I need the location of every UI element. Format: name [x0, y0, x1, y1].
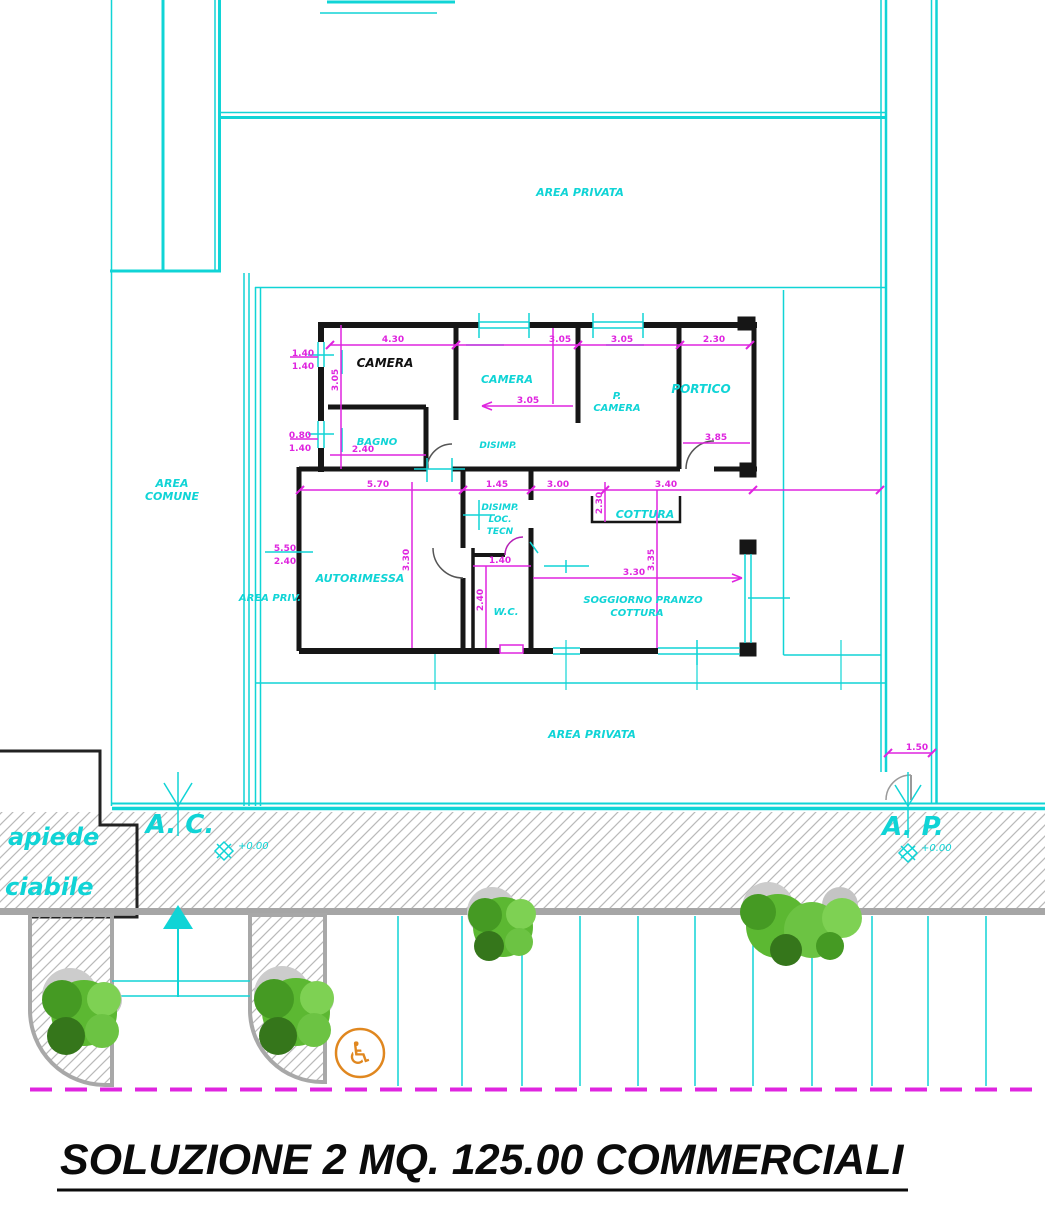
room-cottura-label: COTTURA: [616, 508, 675, 521]
sidewalk-label-fragment: apiede: [8, 823, 99, 851]
drawing-title: SOLUZIONE 2 MQ. 125.00 COMMERCIALI: [60, 1136, 904, 1184]
dim-top-camera: 4.30: [382, 335, 404, 345]
area-privata-bottom-label: AREA PRIVATA: [547, 728, 636, 741]
room-disimp-label: DISIMP.: [479, 441, 516, 451]
dim-garage-width: 5.70: [367, 480, 389, 490]
dim-corridor: 1.45: [486, 480, 508, 490]
room-portico-label: PORTICO: [671, 382, 730, 396]
dim-wc-depth: 2.40: [476, 589, 486, 611]
dim-garage-door-a: 5.50: [274, 544, 296, 554]
access-right-label: A. P.: [880, 812, 944, 842]
dim-top-camera2: 3.05: [549, 335, 571, 345]
access-left-label: A. C.: [144, 810, 215, 840]
driveway-label-fragment: ciabile: [5, 873, 94, 901]
room-loc-tecn-label-line1: DISIMP.: [481, 503, 518, 513]
dim-portico-depth: 3.85: [705, 433, 727, 443]
wheelchair-icon: ♿: [346, 1036, 374, 1072]
area-comune-label-line2: COMUNE: [145, 490, 200, 503]
dim-cottura-depth: 2.30: [595, 492, 605, 514]
room-camera-main-label: CAMERA: [357, 356, 414, 370]
dim-soggiorno-width: 3.30: [623, 568, 645, 578]
dim-wc-width: 1.40: [489, 556, 511, 566]
area-privata-top-label: AREA PRIVATA: [535, 186, 624, 199]
dim-soggiorno-depth: 3.35: [647, 549, 657, 571]
handicap-parking-icon: ♿: [336, 1029, 384, 1077]
title-block: SOLUZIONE 2 MQ. 125.00 COMMERCIALI: [57, 1136, 908, 1190]
parking-area: [30, 905, 1045, 1090]
dim-window1-a: 1.40: [292, 349, 314, 359]
room-soggiorno-label-line1: SOGGIORNO PRANZO: [583, 595, 703, 606]
dim-gate-width: 1.50: [906, 743, 928, 753]
elevation-right-label: +0.00: [921, 843, 952, 854]
dim-bagno-width: 2.40: [352, 445, 374, 455]
dim-cottura-width: 3.00: [547, 480, 569, 490]
dim-window1-b: 1.40: [292, 362, 314, 372]
area-priv-label: AREA PRIV.: [238, 593, 301, 604]
dimension-lines: [290, 325, 936, 757]
dim-garage-door-b: 2.40: [274, 557, 296, 567]
room-autorimessa-label: AUTORIMESSA: [315, 572, 405, 585]
dim-top-portico: 2.30: [703, 335, 725, 345]
crossing-arrow: [163, 905, 193, 997]
dim-camera2-width: 3.05: [517, 396, 539, 406]
drawing-page: ♿: [0, 0, 1045, 1211]
room-p-camera-label-line1: P.: [613, 391, 622, 402]
room-loc-tecn-label-line3: TECN: [487, 527, 514, 537]
room-p-camera-label-line2: CAMERA: [593, 403, 640, 414]
dim-window2-b: 1.40: [289, 444, 311, 454]
room-wc-label: W.C.: [493, 607, 518, 618]
dim-camera-depth: 3.05: [331, 369, 341, 391]
dim-top-pcamera: 3.05: [611, 335, 633, 345]
room-soggiorno-label-line2: COTTURA: [610, 608, 663, 619]
window-glyphs: [265, 313, 790, 665]
elevation-left-label: +0.00: [238, 841, 269, 852]
dim-cottura-right: 3.40: [655, 480, 677, 490]
garage-door-sill: [500, 645, 523, 653]
dim-autorimessa-depth: 3.30: [402, 549, 412, 571]
dim-window2-a: 0.80: [289, 431, 311, 441]
area-comune-label-line1: AREA: [154, 477, 188, 490]
floor-plan-svg: ♿: [0, 0, 1045, 1211]
room-loc-tecn-label-line2: LOC.: [488, 515, 511, 525]
room-camera2-label: CAMERA: [481, 373, 533, 386]
